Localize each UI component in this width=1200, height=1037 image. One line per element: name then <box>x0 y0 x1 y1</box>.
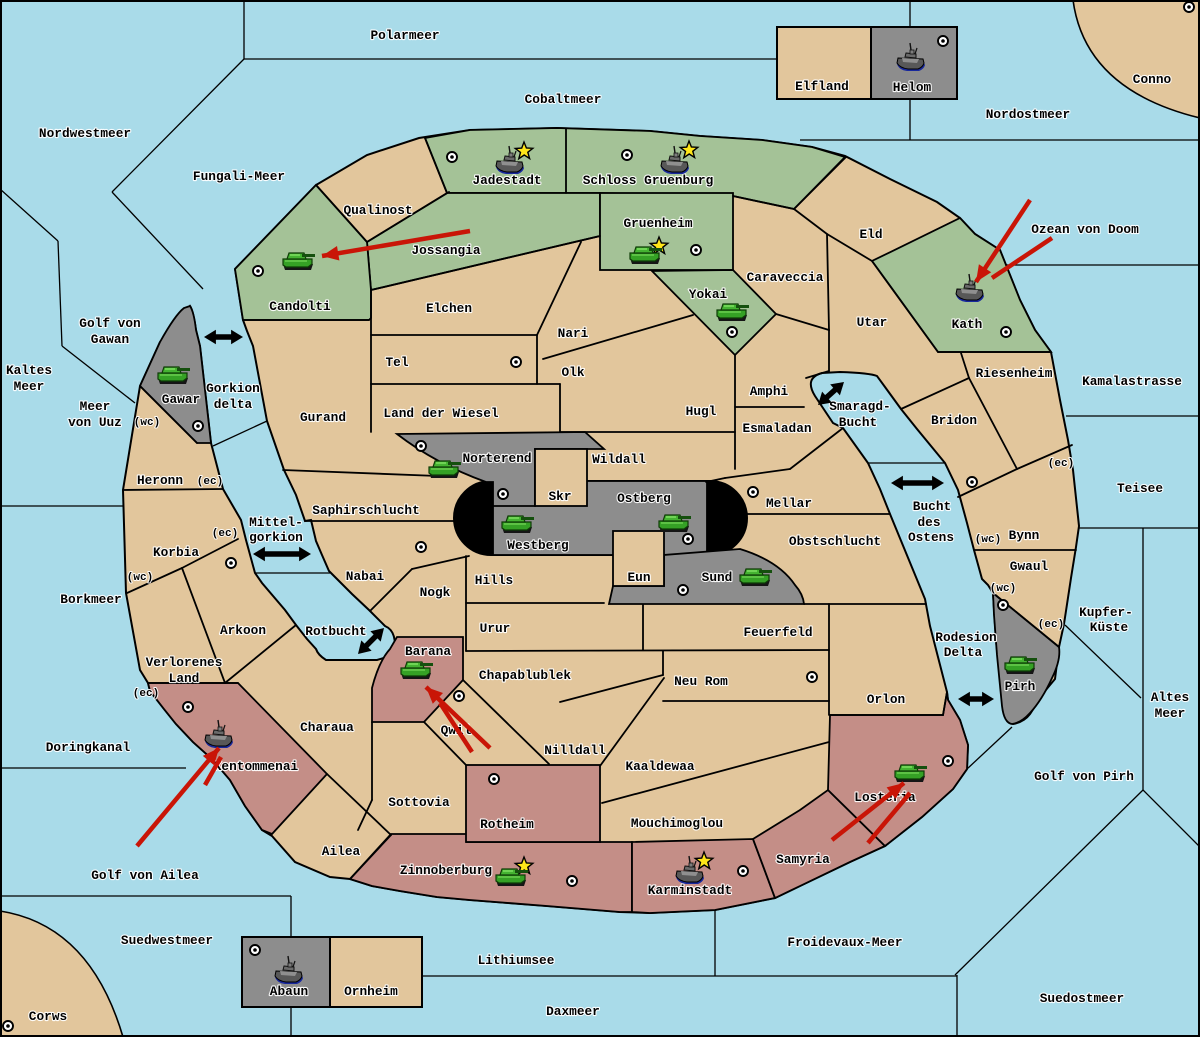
svg-text:Golf von Pirh: Golf von Pirh <box>1034 769 1134 784</box>
svg-text:Esmaladan: Esmaladan <box>742 421 811 436</box>
svg-text:delta: delta <box>214 397 253 412</box>
svg-text:(ec): (ec) <box>212 528 238 540</box>
svg-text:Bucht: Bucht <box>839 415 877 430</box>
svg-text:Meer: Meer <box>1155 706 1186 721</box>
svg-text:Daxmeer: Daxmeer <box>546 1004 600 1019</box>
svg-text:Kaltes: Kaltes <box>6 363 52 378</box>
svg-text:Doringkanal: Doringkanal <box>46 740 131 755</box>
svg-text:Kentommenai: Kentommenai <box>214 759 299 774</box>
svg-text:Conno: Conno <box>1133 72 1172 87</box>
svg-text:Karminstadt: Karminstadt <box>648 883 732 898</box>
svg-text:Jossangia: Jossangia <box>411 243 480 258</box>
svg-text:Mellar: Mellar <box>766 496 812 511</box>
svg-text:Nogk: Nogk <box>420 585 451 600</box>
svg-text:Teisee: Teisee <box>1117 481 1163 496</box>
svg-text:Kamalastrasse: Kamalastrasse <box>1082 374 1182 389</box>
svg-text:Ailea: Ailea <box>322 844 361 859</box>
svg-text:Nabai: Nabai <box>346 569 385 584</box>
svg-text:Ozean von Doom: Ozean von Doom <box>1031 222 1139 237</box>
svg-text:Feuerfeld: Feuerfeld <box>743 625 812 640</box>
svg-text:(wc): (wc) <box>975 534 1001 546</box>
svg-text:Mittel-: Mittel- <box>249 515 303 530</box>
svg-text:Gruenheim: Gruenheim <box>623 216 692 231</box>
svg-text:Borkmeer: Borkmeer <box>60 592 121 607</box>
svg-text:Eun: Eun <box>627 570 650 585</box>
svg-text:Westberg: Westberg <box>507 538 568 553</box>
svg-text:Ostberg: Ostberg <box>617 491 671 506</box>
svg-text:Rotheim: Rotheim <box>480 817 534 832</box>
svg-text:von Uuz: von Uuz <box>68 415 122 430</box>
svg-text:Rotbucht: Rotbucht <box>305 624 366 639</box>
svg-text:Bridon: Bridon <box>931 413 977 428</box>
svg-text:Arkoon: Arkoon <box>220 623 266 638</box>
svg-text:Smaragd-: Smaragd- <box>829 399 890 414</box>
svg-text:Orlon: Orlon <box>867 692 905 707</box>
svg-text:Polarmeer: Polarmeer <box>370 28 439 43</box>
svg-text:Fungali-Meer: Fungali-Meer <box>193 169 285 184</box>
svg-text:Samyria: Samyria <box>776 852 830 867</box>
svg-text:Yokai: Yokai <box>689 287 728 302</box>
svg-text:Zinnoberburg: Zinnoberburg <box>400 863 492 878</box>
svg-text:Bynn: Bynn <box>1009 528 1040 543</box>
svg-text:Land der Wiesel: Land der Wiesel <box>383 406 499 421</box>
svg-text:Sund: Sund <box>702 570 733 585</box>
svg-text:Kaaldewaa: Kaaldewaa <box>625 759 694 774</box>
svg-text:Verlorenes: Verlorenes <box>146 655 223 670</box>
svg-text:(ec): (ec) <box>1048 458 1074 470</box>
svg-text:Kath: Kath <box>952 317 983 332</box>
svg-text:Urur: Urur <box>480 621 511 636</box>
svg-text:Norterend: Norterend <box>462 451 531 466</box>
svg-text:Jadestadt: Jadestadt <box>472 173 541 188</box>
svg-text:gorkion: gorkion <box>249 530 303 545</box>
svg-text:Ornheim: Ornheim <box>344 984 398 999</box>
svg-text:Elfland: Elfland <box>795 79 849 94</box>
svg-text:Korbia: Korbia <box>153 545 199 560</box>
svg-text:Altes: Altes <box>1151 690 1189 705</box>
svg-text:(ec): (ec) <box>133 688 159 700</box>
svg-text:Eld: Eld <box>859 227 882 242</box>
svg-text:Rodesion: Rodesion <box>935 630 996 645</box>
svg-text:Gurand: Gurand <box>300 410 346 425</box>
svg-text:Olk: Olk <box>561 365 584 380</box>
svg-text:Tel: Tel <box>385 355 408 370</box>
svg-text:Nordwestmeer: Nordwestmeer <box>39 126 131 141</box>
svg-text:Helom: Helom <box>893 80 932 95</box>
svg-text:Ostens: Ostens <box>908 530 954 545</box>
svg-text:des: des <box>917 515 940 530</box>
svg-text:Schloss Gruenburg: Schloss Gruenburg <box>583 173 714 188</box>
svg-text:(wc): (wc) <box>990 583 1016 595</box>
svg-text:Gawan: Gawan <box>91 332 129 347</box>
svg-text:Nilldall: Nilldall <box>544 743 606 758</box>
svg-text:Saphirschlucht: Saphirschlucht <box>312 503 420 518</box>
svg-text:Nari: Nari <box>558 326 589 341</box>
svg-text:Utar: Utar <box>857 315 888 330</box>
svg-text:Barana: Barana <box>405 644 451 659</box>
svg-text:Elchen: Elchen <box>426 301 472 316</box>
svg-text:(ec): (ec) <box>1038 619 1064 631</box>
svg-text:Nordostmeer: Nordostmeer <box>986 107 1070 122</box>
svg-text:Wildall: Wildall <box>592 452 646 467</box>
svg-text:Gorkion: Gorkion <box>206 381 260 396</box>
svg-text:Suedwestmeer: Suedwestmeer <box>121 933 213 948</box>
svg-text:Caraveccia: Caraveccia <box>747 270 824 285</box>
svg-text:Gwaul: Gwaul <box>1010 559 1049 574</box>
svg-text:Lithiumsee: Lithiumsee <box>478 953 555 968</box>
svg-text:Hills: Hills <box>475 573 513 588</box>
svg-text:Cobaltmeer: Cobaltmeer <box>525 92 602 107</box>
svg-text:Küste: Küste <box>1090 620 1129 635</box>
svg-text:Chapablublek: Chapablublek <box>479 668 571 683</box>
svg-text:Mouchimoglou: Mouchimoglou <box>631 816 723 831</box>
svg-text:Bucht: Bucht <box>913 499 951 514</box>
svg-text:(wc): (wc) <box>127 572 153 584</box>
svg-text:Neu Rom: Neu Rom <box>674 674 728 689</box>
svg-text:Obstschlucht: Obstschlucht <box>789 534 881 549</box>
svg-text:Golf von: Golf von <box>79 316 140 331</box>
svg-text:Skr: Skr <box>548 489 571 504</box>
svg-text:Amphi: Amphi <box>750 384 789 399</box>
svg-text:Land: Land <box>169 671 200 686</box>
svg-text:Charaua: Charaua <box>300 720 354 735</box>
svg-text:(wc): (wc) <box>134 417 160 429</box>
svg-text:Corws: Corws <box>29 1009 67 1024</box>
svg-text:Meer: Meer <box>80 399 111 414</box>
svg-text:Delta: Delta <box>944 645 983 660</box>
svg-text:Pirh: Pirh <box>1005 679 1036 694</box>
svg-text:Gawar: Gawar <box>162 392 200 407</box>
svg-text:Hugl: Hugl <box>686 404 717 419</box>
svg-text:Candolti: Candolti <box>269 299 331 314</box>
svg-text:Qualinost: Qualinost <box>343 203 412 218</box>
svg-text:Meer: Meer <box>14 379 45 394</box>
svg-text:Froidevaux-Meer: Froidevaux-Meer <box>787 935 902 950</box>
svg-text:(ec): (ec) <box>197 476 223 488</box>
svg-text:Golf von Ailea: Golf von Ailea <box>91 868 199 883</box>
svg-text:Abaun: Abaun <box>270 984 308 999</box>
svg-text:Suedostmeer: Suedostmeer <box>1040 991 1124 1006</box>
svg-text:Heronn: Heronn <box>137 473 183 488</box>
svg-text:Kupfer-: Kupfer- <box>1079 605 1133 620</box>
svg-text:Riesenheim: Riesenheim <box>976 366 1053 381</box>
svg-text:Sottovia: Sottovia <box>388 795 450 810</box>
